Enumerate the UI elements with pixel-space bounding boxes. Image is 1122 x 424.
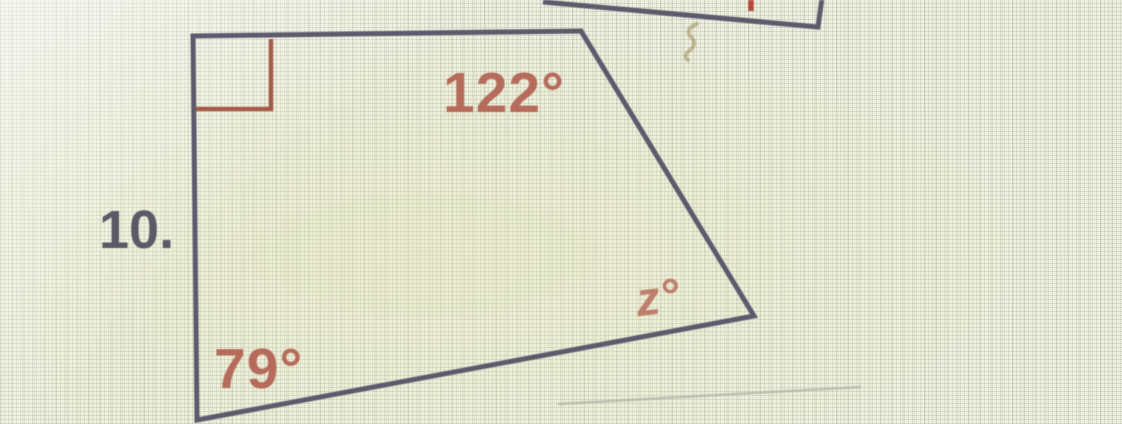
right-angle-marker — [196, 39, 271, 109]
previous-figure-fragment — [543, 0, 822, 27]
angle-label-z: z° — [632, 269, 683, 327]
angle-label-122: 122° — [443, 61, 565, 125]
problem-number: 10. — [99, 200, 174, 260]
pencil-squiggle-mark — [686, 24, 697, 60]
angle-label-79: 79° — [214, 337, 303, 401]
worksheet-photo: 122° 79° z° 10. — [0, 0, 1122, 424]
geometry-diagram: 122° 79° z° 10. — [0, 0, 1122, 424]
geometry-diagram-layer: 122° 79° z° 10. — [0, 0, 1122, 424]
faint-pencil-line — [558, 387, 861, 404]
